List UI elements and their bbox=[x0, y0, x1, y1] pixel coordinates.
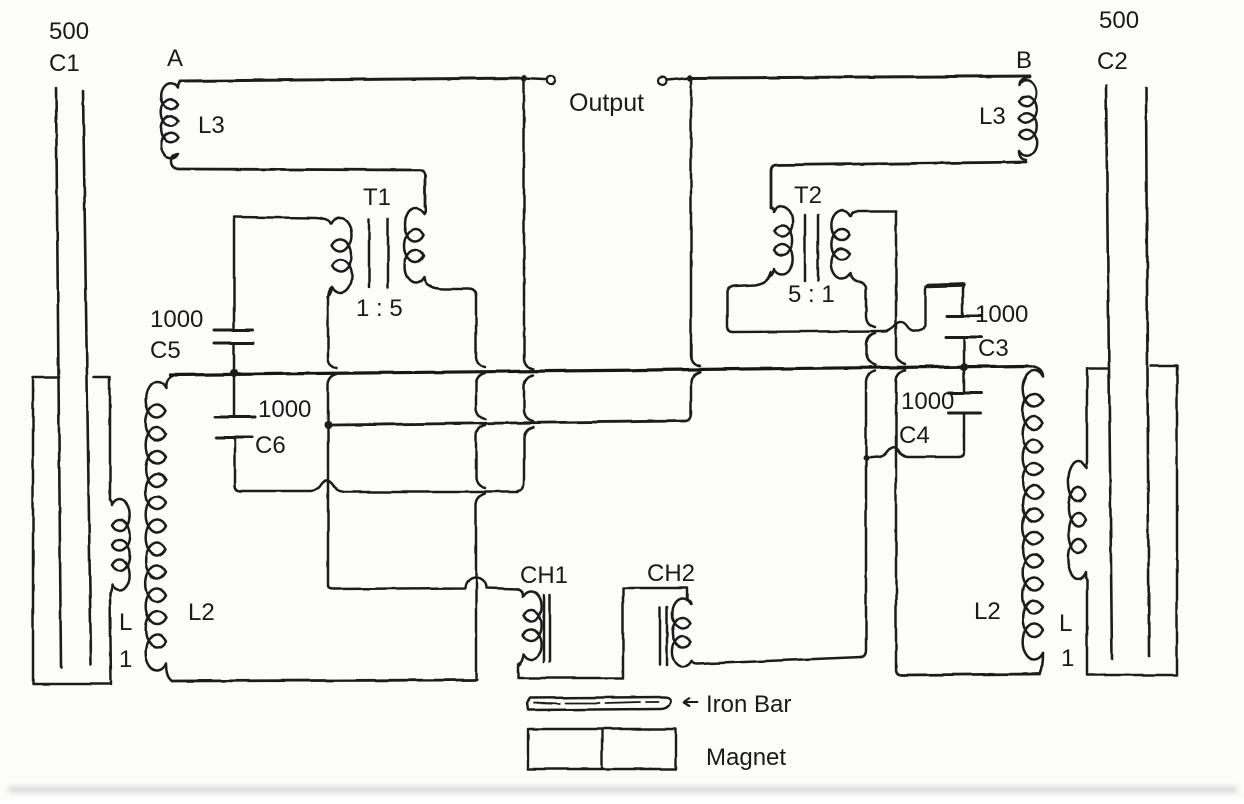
svg-text:1000: 1000 bbox=[258, 396, 311, 423]
svg-text:L2: L2 bbox=[974, 598, 1001, 625]
svg-text:L3: L3 bbox=[979, 103, 1006, 130]
svg-text:Output: Output bbox=[569, 89, 644, 117]
svg-text:5 : 1: 5 : 1 bbox=[788, 281, 835, 308]
svg-text:1000: 1000 bbox=[975, 301, 1028, 328]
svg-text:1 : 5: 1 : 5 bbox=[356, 295, 403, 322]
svg-text:L3: L3 bbox=[198, 112, 225, 139]
svg-text:1000: 1000 bbox=[901, 388, 954, 415]
svg-text:Iron Bar: Iron Bar bbox=[706, 691, 791, 718]
svg-text:1000: 1000 bbox=[150, 306, 203, 333]
svg-text:C2: C2 bbox=[1097, 48, 1128, 75]
svg-text:C4: C4 bbox=[899, 422, 930, 449]
svg-text:1: 1 bbox=[1061, 645, 1074, 672]
svg-text:B: B bbox=[1016, 47, 1032, 74]
svg-text:L2: L2 bbox=[188, 599, 215, 626]
svg-text:500: 500 bbox=[1099, 7, 1139, 34]
svg-text:CH1: CH1 bbox=[520, 562, 568, 589]
svg-text:CH2: CH2 bbox=[647, 560, 695, 587]
svg-text:L: L bbox=[119, 609, 132, 636]
svg-text:C6: C6 bbox=[255, 432, 286, 459]
svg-text:L: L bbox=[1059, 610, 1072, 637]
svg-text:Magnet: Magnet bbox=[706, 744, 786, 771]
svg-text:1: 1 bbox=[119, 646, 132, 673]
svg-text:T2: T2 bbox=[794, 182, 822, 209]
svg-text:C5: C5 bbox=[150, 337, 181, 364]
svg-text:T1: T1 bbox=[363, 184, 391, 211]
svg-text:A: A bbox=[167, 45, 183, 72]
svg-text:C3: C3 bbox=[978, 335, 1009, 362]
svg-text:C1: C1 bbox=[49, 50, 80, 77]
svg-text:500: 500 bbox=[49, 18, 89, 45]
